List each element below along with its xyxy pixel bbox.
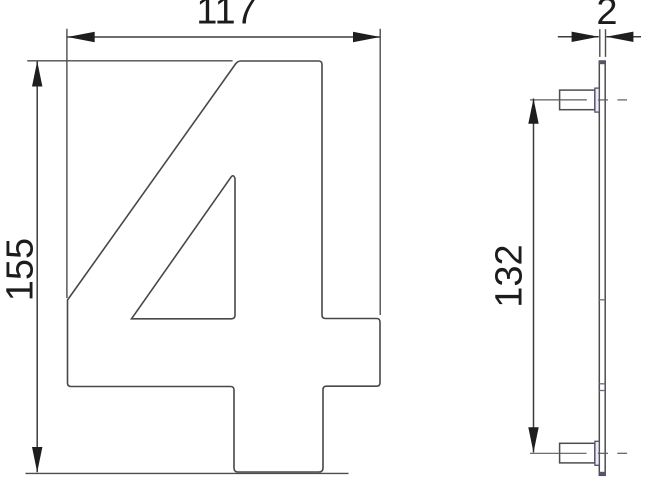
svg-text:132: 132 xyxy=(488,244,530,307)
svg-text:155: 155 xyxy=(0,238,41,301)
svg-text:2: 2 xyxy=(596,0,617,33)
svg-text:117: 117 xyxy=(196,0,257,32)
